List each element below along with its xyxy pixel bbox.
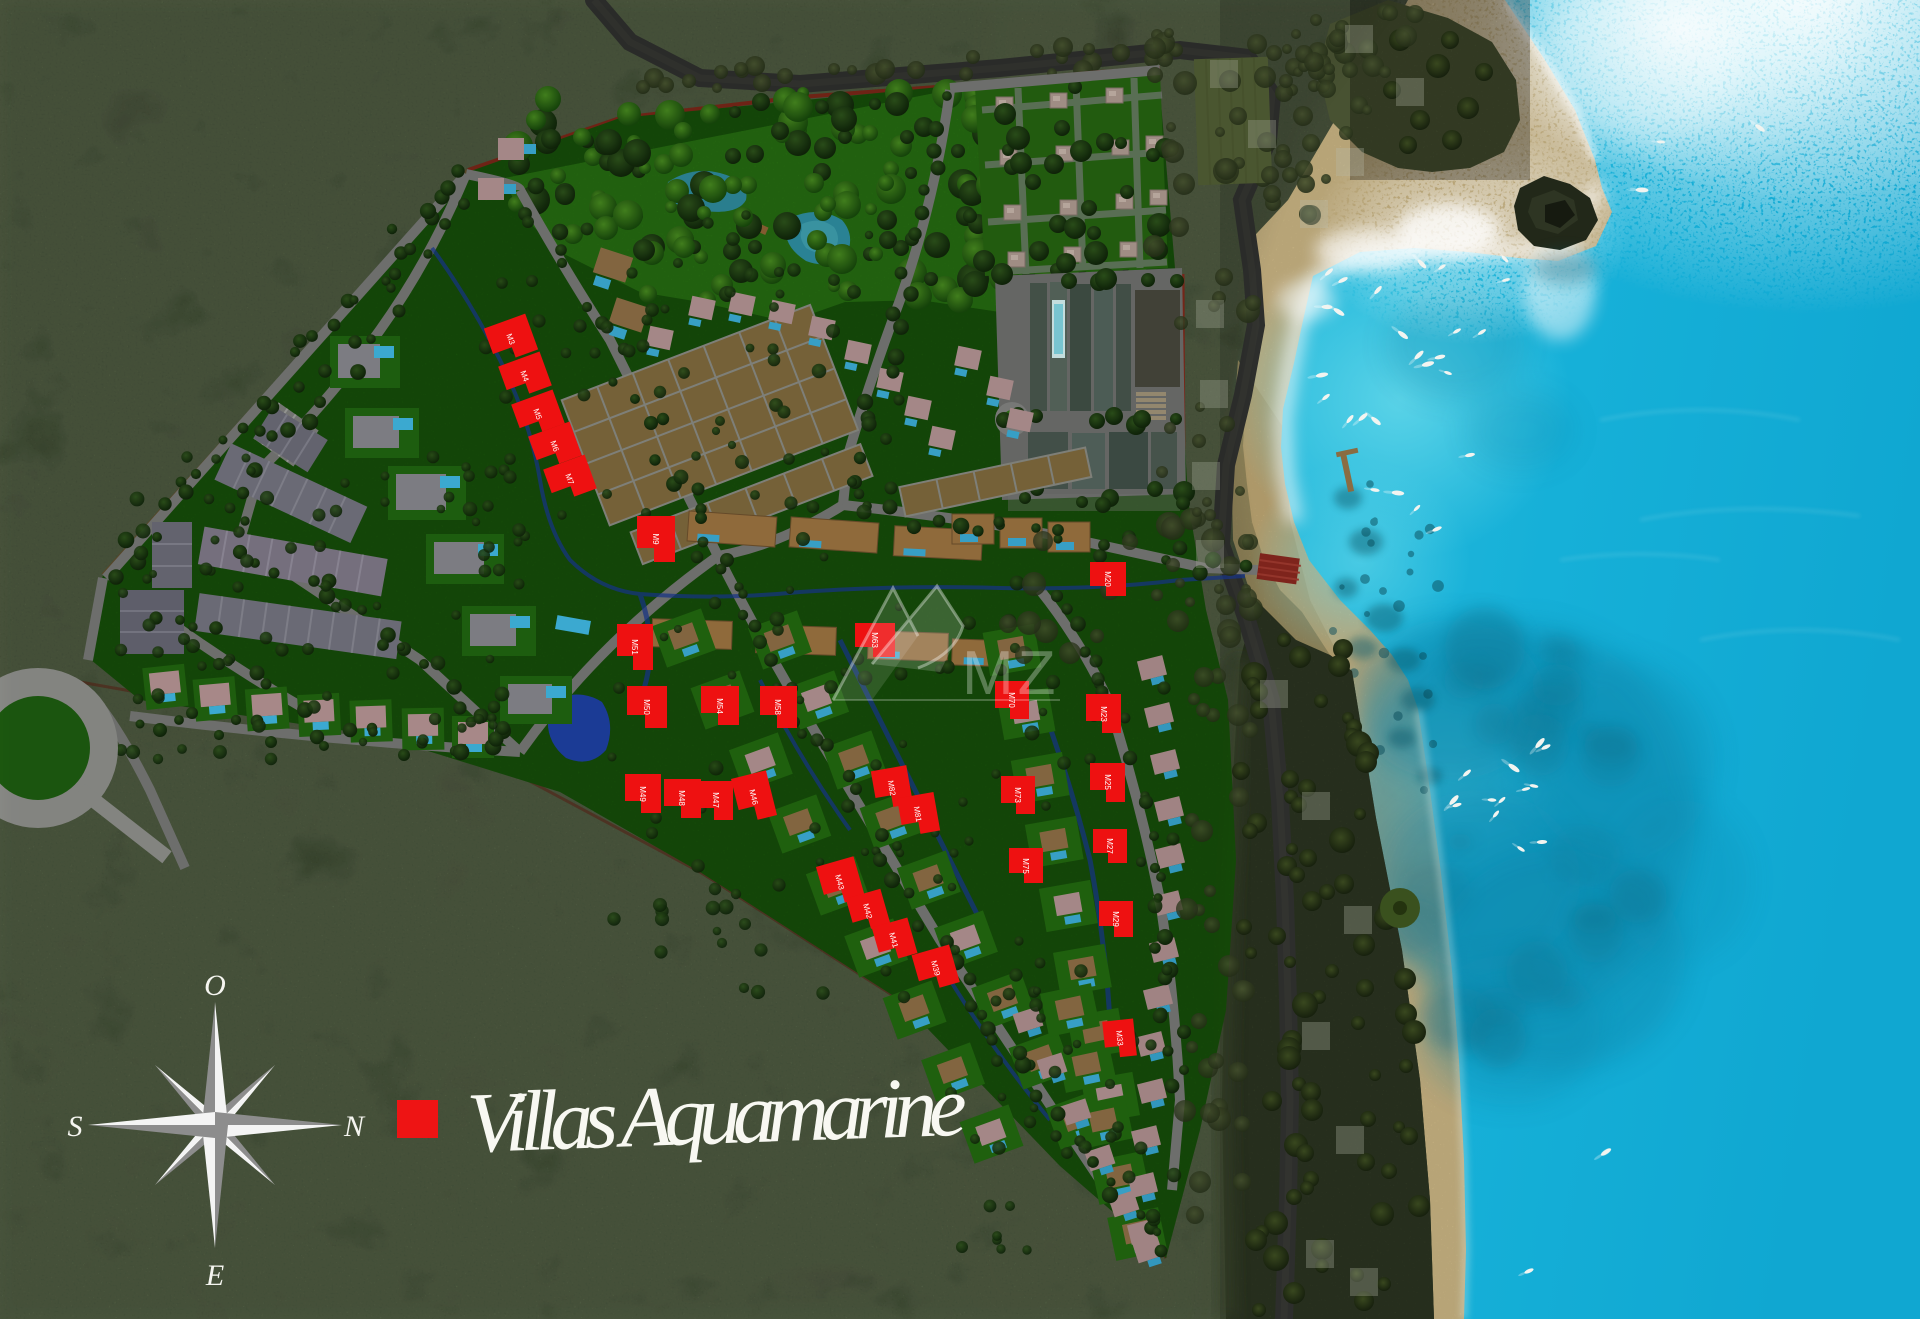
svg-text:M27: M27 [1105, 838, 1114, 854]
svg-text:MZ: MZ [962, 639, 1060, 708]
svg-text:M20: M20 [1103, 571, 1112, 587]
svg-text:N: N [343, 1110, 366, 1143]
svg-text:M54: M54 [715, 698, 724, 714]
svg-text:O: O [204, 969, 226, 1002]
svg-text:M9: M9 [651, 533, 660, 545]
svg-text:M49: M49 [638, 786, 647, 802]
svg-text:M29: M29 [1111, 911, 1120, 927]
svg-text:M33: M33 [1114, 1030, 1125, 1047]
svg-text:M48: M48 [677, 790, 686, 806]
svg-text:S: S [68, 1110, 83, 1143]
svg-text:M75: M75 [1021, 858, 1030, 874]
svg-text:M47: M47 [711, 792, 720, 808]
svg-text:E: E [205, 1259, 224, 1292]
svg-text:M73: M73 [1013, 787, 1022, 803]
svg-text:M23: M23 [1099, 706, 1108, 722]
svg-text:M51: M51 [630, 639, 639, 655]
svg-text:Villas Aquamarine: Villas Aquamarine [465, 1058, 968, 1171]
svg-text:M58: M58 [773, 699, 782, 715]
svg-text:M50: M50 [642, 699, 651, 715]
svg-text:M25: M25 [1103, 774, 1112, 790]
